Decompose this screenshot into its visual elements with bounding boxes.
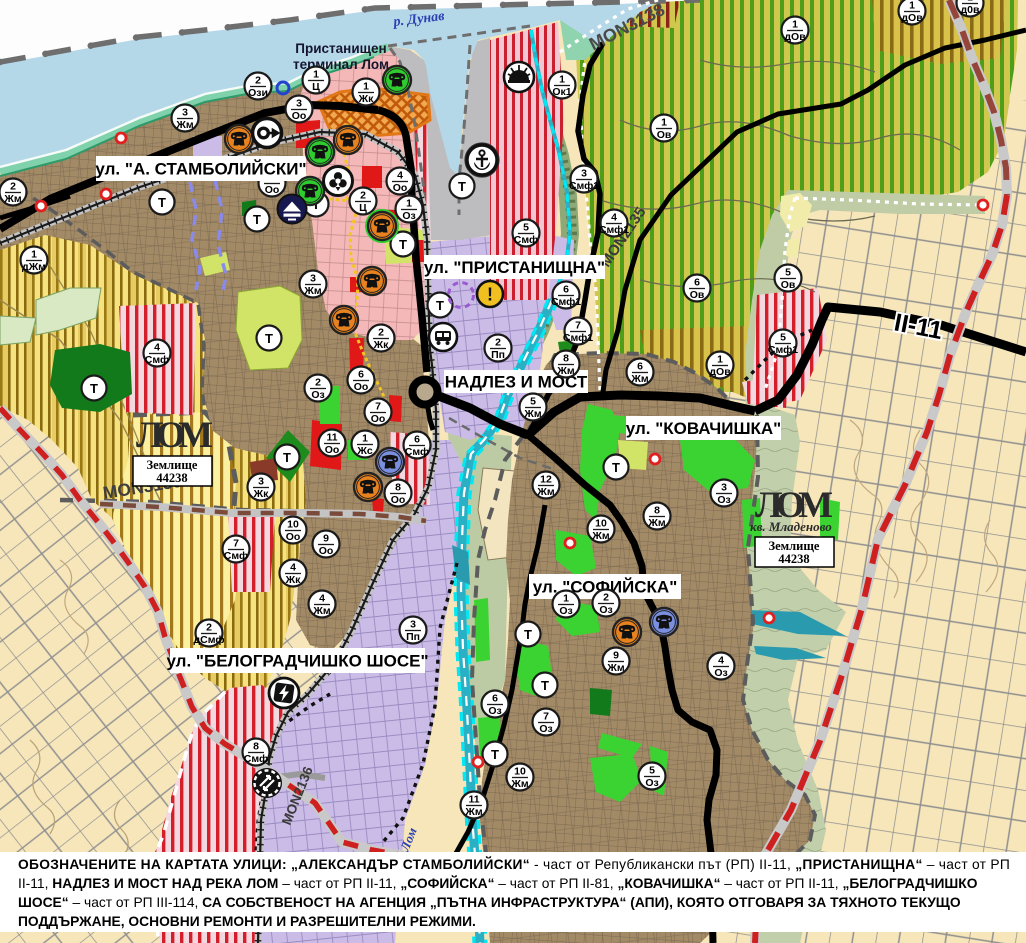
- svg-text:ул. "А. СТАМБОЛИЙСКИ": ул. "А. СТАМБОЛИЙСКИ": [95, 160, 306, 179]
- svg-text:Оо: Оо: [391, 494, 406, 506]
- svg-text:Смф1: Смф1: [569, 180, 599, 192]
- svg-text:Оз: Оз: [488, 705, 501, 717]
- svg-text:Смф1: Смф1: [563, 332, 593, 344]
- svg-text:Оз: Оз: [311, 389, 324, 401]
- svg-text:Смф: Смф: [224, 550, 248, 562]
- svg-text:4: 4: [319, 593, 325, 605]
- svg-text:Жм: Жм: [303, 285, 321, 297]
- svg-text:7: 7: [575, 320, 581, 332]
- svg-text:Оо: Оо: [319, 545, 334, 557]
- svg-text:д0в: д0в: [961, 4, 981, 16]
- svg-text:ул. "КОВАЧИШКА": ул. "КОВАЧИШКА": [626, 419, 782, 438]
- svg-text:11: 11: [468, 794, 479, 806]
- svg-text:Жм: Жм: [630, 373, 648, 385]
- svg-text:Жк: Жк: [373, 339, 389, 351]
- svg-text:8: 8: [253, 741, 259, 753]
- svg-text:9: 9: [613, 650, 619, 662]
- svg-text:Жм: Жм: [606, 662, 624, 674]
- svg-text:8: 8: [654, 505, 660, 517]
- svg-text:2: 2: [378, 327, 384, 339]
- svg-text:Оз: Оз: [717, 494, 730, 506]
- svg-text:2: 2: [603, 592, 609, 604]
- svg-text:ПОДДЪРЖАНЕ, ОСНОВНИ РЕМОНТИ И: ПОДДЪРЖАНЕ, ОСНОВНИ РЕМОНТИ И РАЗРЕШИТЕЛ…: [18, 914, 476, 929]
- svg-text:ШОСЕ“ – част от РП III-114, СА: ШОСЕ“ – част от РП III-114, СА СОБСТВЕНО…: [18, 895, 961, 910]
- svg-text:Т: Т: [399, 237, 407, 252]
- svg-text:10: 10: [287, 519, 299, 531]
- svg-text:7: 7: [375, 401, 381, 413]
- svg-text:дЖм: дЖм: [22, 261, 46, 273]
- svg-text:1: 1: [559, 74, 565, 86]
- svg-text:5: 5: [523, 222, 529, 234]
- svg-text:ЛОМ: ЛОМ: [136, 415, 213, 456]
- svg-text:7: 7: [543, 711, 549, 723]
- svg-text:Оз: Оз: [714, 667, 727, 679]
- svg-text:дОв: дОв: [901, 12, 923, 24]
- svg-text:ул. "ПРИСТАНИЩНА": ул. "ПРИСТАНИЩНА": [424, 258, 605, 277]
- svg-text:2: 2: [206, 622, 212, 634]
- svg-text:Жм: Жм: [464, 806, 482, 818]
- svg-text:1: 1: [717, 354, 723, 366]
- svg-text:Жм: Жм: [175, 119, 193, 131]
- svg-text:3: 3: [258, 476, 264, 488]
- svg-text:Т: Т: [90, 381, 98, 396]
- svg-text:4: 4: [611, 212, 617, 224]
- svg-text:Смф1: Смф1: [768, 344, 798, 356]
- svg-text:Жм: Жм: [3, 193, 21, 205]
- svg-text:5: 5: [649, 765, 655, 777]
- svg-text:6: 6: [358, 369, 364, 381]
- svg-text:2: 2: [495, 337, 501, 349]
- svg-text:7: 7: [233, 538, 239, 550]
- svg-text:1: 1: [406, 198, 412, 210]
- svg-text:1: 1: [363, 81, 369, 93]
- svg-text:Оо: Оо: [393, 182, 408, 194]
- svg-text:4: 4: [397, 170, 403, 182]
- svg-text:Оо: Оо: [265, 184, 280, 196]
- svg-text:4: 4: [154, 342, 160, 354]
- svg-text:2: 2: [360, 190, 366, 202]
- svg-text:1: 1: [661, 117, 667, 129]
- svg-text:1: 1: [792, 19, 798, 31]
- svg-text:Смф: Смф: [514, 234, 538, 246]
- svg-text:8: 8: [395, 482, 401, 494]
- svg-text:3: 3: [410, 619, 416, 631]
- svg-text:Жк: Жк: [253, 488, 269, 500]
- svg-text:Смф: Смф: [145, 354, 169, 366]
- svg-text:ОБОЗНАЧЕНИТЕ НА КАРТАТА УЛИЦИ:: ОБОЗНАЧЕНИТЕ НА КАРТАТА УЛИЦИ: „АЛЕКСАНД…: [18, 855, 1010, 872]
- svg-text:Оз: Оз: [645, 777, 658, 789]
- svg-text:6: 6: [492, 693, 498, 705]
- svg-text:1: 1: [313, 69, 319, 81]
- svg-text:3: 3: [182, 107, 188, 119]
- svg-text:Оз: Оз: [599, 604, 612, 616]
- svg-text:Жм: Жм: [647, 517, 665, 529]
- svg-text:Жм: Жм: [312, 605, 330, 617]
- svg-text:кв. Младеново: кв. Младеново: [750, 519, 832, 534]
- svg-text:8: 8: [563, 353, 569, 365]
- svg-text:Пп: Пп: [491, 349, 505, 361]
- svg-text:2: 2: [315, 377, 321, 389]
- svg-text:Жс: Жс: [356, 445, 372, 457]
- svg-text:44238: 44238: [156, 471, 187, 485]
- svg-text:1: 1: [909, 0, 915, 12]
- svg-text:Т: Т: [541, 678, 549, 693]
- svg-text:5: 5: [785, 267, 791, 279]
- svg-text:10: 10: [514, 766, 526, 778]
- svg-text:44238: 44238: [778, 552, 809, 566]
- svg-text:5: 5: [530, 396, 536, 408]
- svg-text:Землище: Землище: [147, 458, 198, 472]
- svg-text:Оо: Оо: [371, 413, 386, 425]
- svg-text:3: 3: [310, 273, 316, 285]
- svg-text:Оо: Оо: [325, 444, 340, 456]
- svg-text:II-11, НАДЛЕЗ И МОСТ НАД РЕКА: II-11, НАДЛЕЗ И МОСТ НАД РЕКА ЛОМ – част…: [18, 874, 978, 891]
- svg-text:Т: Т: [265, 331, 273, 346]
- svg-text:Т: Т: [458, 179, 466, 194]
- svg-text:Ц: Ц: [359, 202, 367, 214]
- svg-text:Пристанищен: Пристанищен: [295, 41, 386, 56]
- svg-text:Жк: Жк: [358, 93, 374, 105]
- svg-text:Оо: Оо: [286, 531, 301, 543]
- svg-text:дОв: дОв: [709, 366, 731, 378]
- svg-text:2: 2: [10, 181, 16, 193]
- svg-text:Оо: Оо: [292, 110, 307, 122]
- svg-text:Смф1: Смф1: [599, 224, 629, 236]
- svg-text:Жм: Жм: [591, 530, 609, 542]
- svg-text:Т: Т: [158, 195, 166, 210]
- svg-text:1: 1: [563, 593, 569, 605]
- svg-text:4: 4: [290, 562, 296, 574]
- svg-text:4: 4: [718, 655, 724, 667]
- svg-text:1: 1: [362, 433, 368, 445]
- svg-text:Жм: Жм: [556, 365, 574, 377]
- svg-text:3: 3: [296, 98, 302, 110]
- svg-text:Жм: Жм: [523, 408, 541, 420]
- svg-text:6: 6: [563, 284, 569, 296]
- svg-text:Смф: Смф: [405, 446, 429, 458]
- svg-text:Землище: Землище: [769, 539, 820, 553]
- svg-text:Ц: Ц: [312, 81, 320, 93]
- svg-text:Пп: Пп: [406, 631, 420, 643]
- svg-text:Ок1: Ок1: [552, 86, 571, 98]
- svg-text:12: 12: [540, 474, 552, 486]
- svg-text:Смф: Смф: [244, 753, 268, 765]
- svg-text:3: 3: [721, 482, 727, 494]
- svg-text:Ов: Ов: [690, 289, 705, 301]
- svg-text:дОв: дОв: [784, 31, 806, 43]
- svg-text:9: 9: [323, 533, 329, 545]
- svg-text:3: 3: [581, 168, 587, 180]
- svg-text:1: 1: [967, 0, 973, 4]
- svg-text:Т: Т: [491, 747, 499, 762]
- svg-text:Жк: Жк: [285, 574, 301, 586]
- svg-text:дСмф: дСмф: [193, 634, 224, 646]
- svg-text:1: 1: [31, 249, 37, 261]
- svg-text:Т: Т: [612, 460, 620, 475]
- svg-text:Смф1: Смф1: [551, 296, 581, 308]
- svg-text:Оо: Оо: [354, 381, 369, 393]
- svg-text:Оз: Оз: [539, 723, 552, 735]
- svg-text:Т: Т: [436, 298, 444, 313]
- svg-text:10: 10: [595, 518, 607, 530]
- svg-text:ул. "БЕЛОГРАДЧИШКО ШОСЕ": ул. "БЕЛОГРАДЧИШКО ШОСЕ": [166, 652, 428, 671]
- svg-text:Т: Т: [524, 627, 532, 642]
- svg-text:Оз: Оз: [402, 210, 415, 222]
- svg-text:11: 11: [326, 432, 337, 444]
- svg-text:Ози: Ози: [248, 87, 268, 99]
- svg-text:2: 2: [255, 75, 261, 87]
- svg-text:Ов: Ов: [657, 129, 672, 141]
- svg-text:5: 5: [780, 332, 786, 344]
- svg-text:!: !: [487, 285, 493, 305]
- svg-text:Т: Т: [283, 450, 291, 465]
- svg-text:Ов: Ов: [781, 279, 796, 291]
- svg-text:6: 6: [694, 277, 700, 289]
- svg-text:Оз: Оз: [559, 605, 572, 617]
- svg-text:6: 6: [637, 361, 643, 373]
- svg-text:6: 6: [414, 434, 420, 446]
- svg-text:Жм: Жм: [536, 486, 554, 498]
- svg-text:Т: Т: [253, 212, 261, 227]
- svg-text:Жм: Жм: [510, 778, 528, 790]
